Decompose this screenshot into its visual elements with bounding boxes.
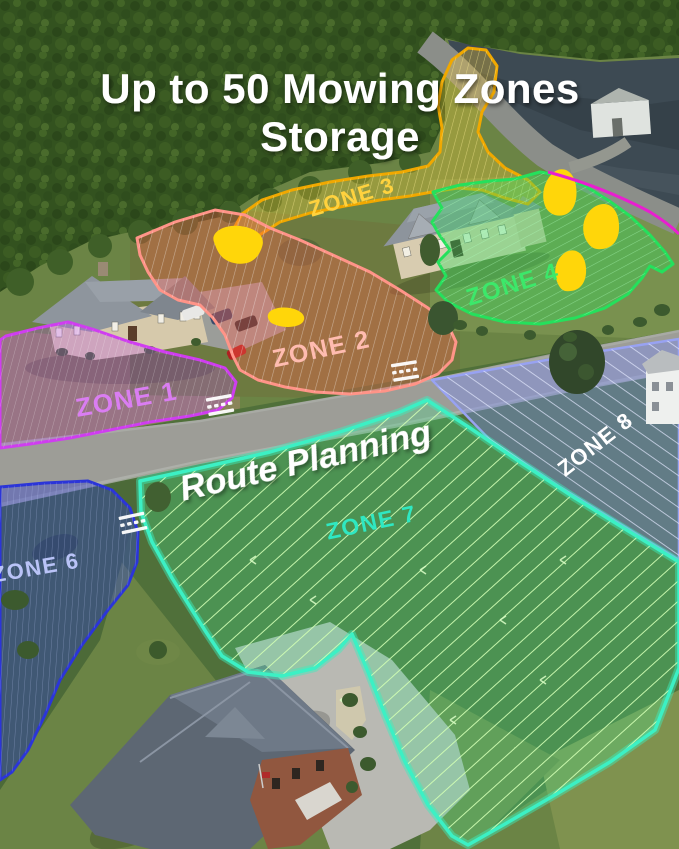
house-right-edge (642, 350, 679, 424)
title-line2: Storage (260, 113, 420, 160)
aerial-scene: ZONE 1 ZONE 2 ZONE 3 ZONE 4 ZONE 6 ZONE … (0, 0, 679, 849)
us-flag (262, 772, 270, 778)
promo-image: ZONE 1 ZONE 2 ZONE 3 ZONE 4 ZONE 6 ZONE … (0, 0, 679, 849)
title-line1: Up to 50 Mowing Zones (100, 65, 580, 112)
